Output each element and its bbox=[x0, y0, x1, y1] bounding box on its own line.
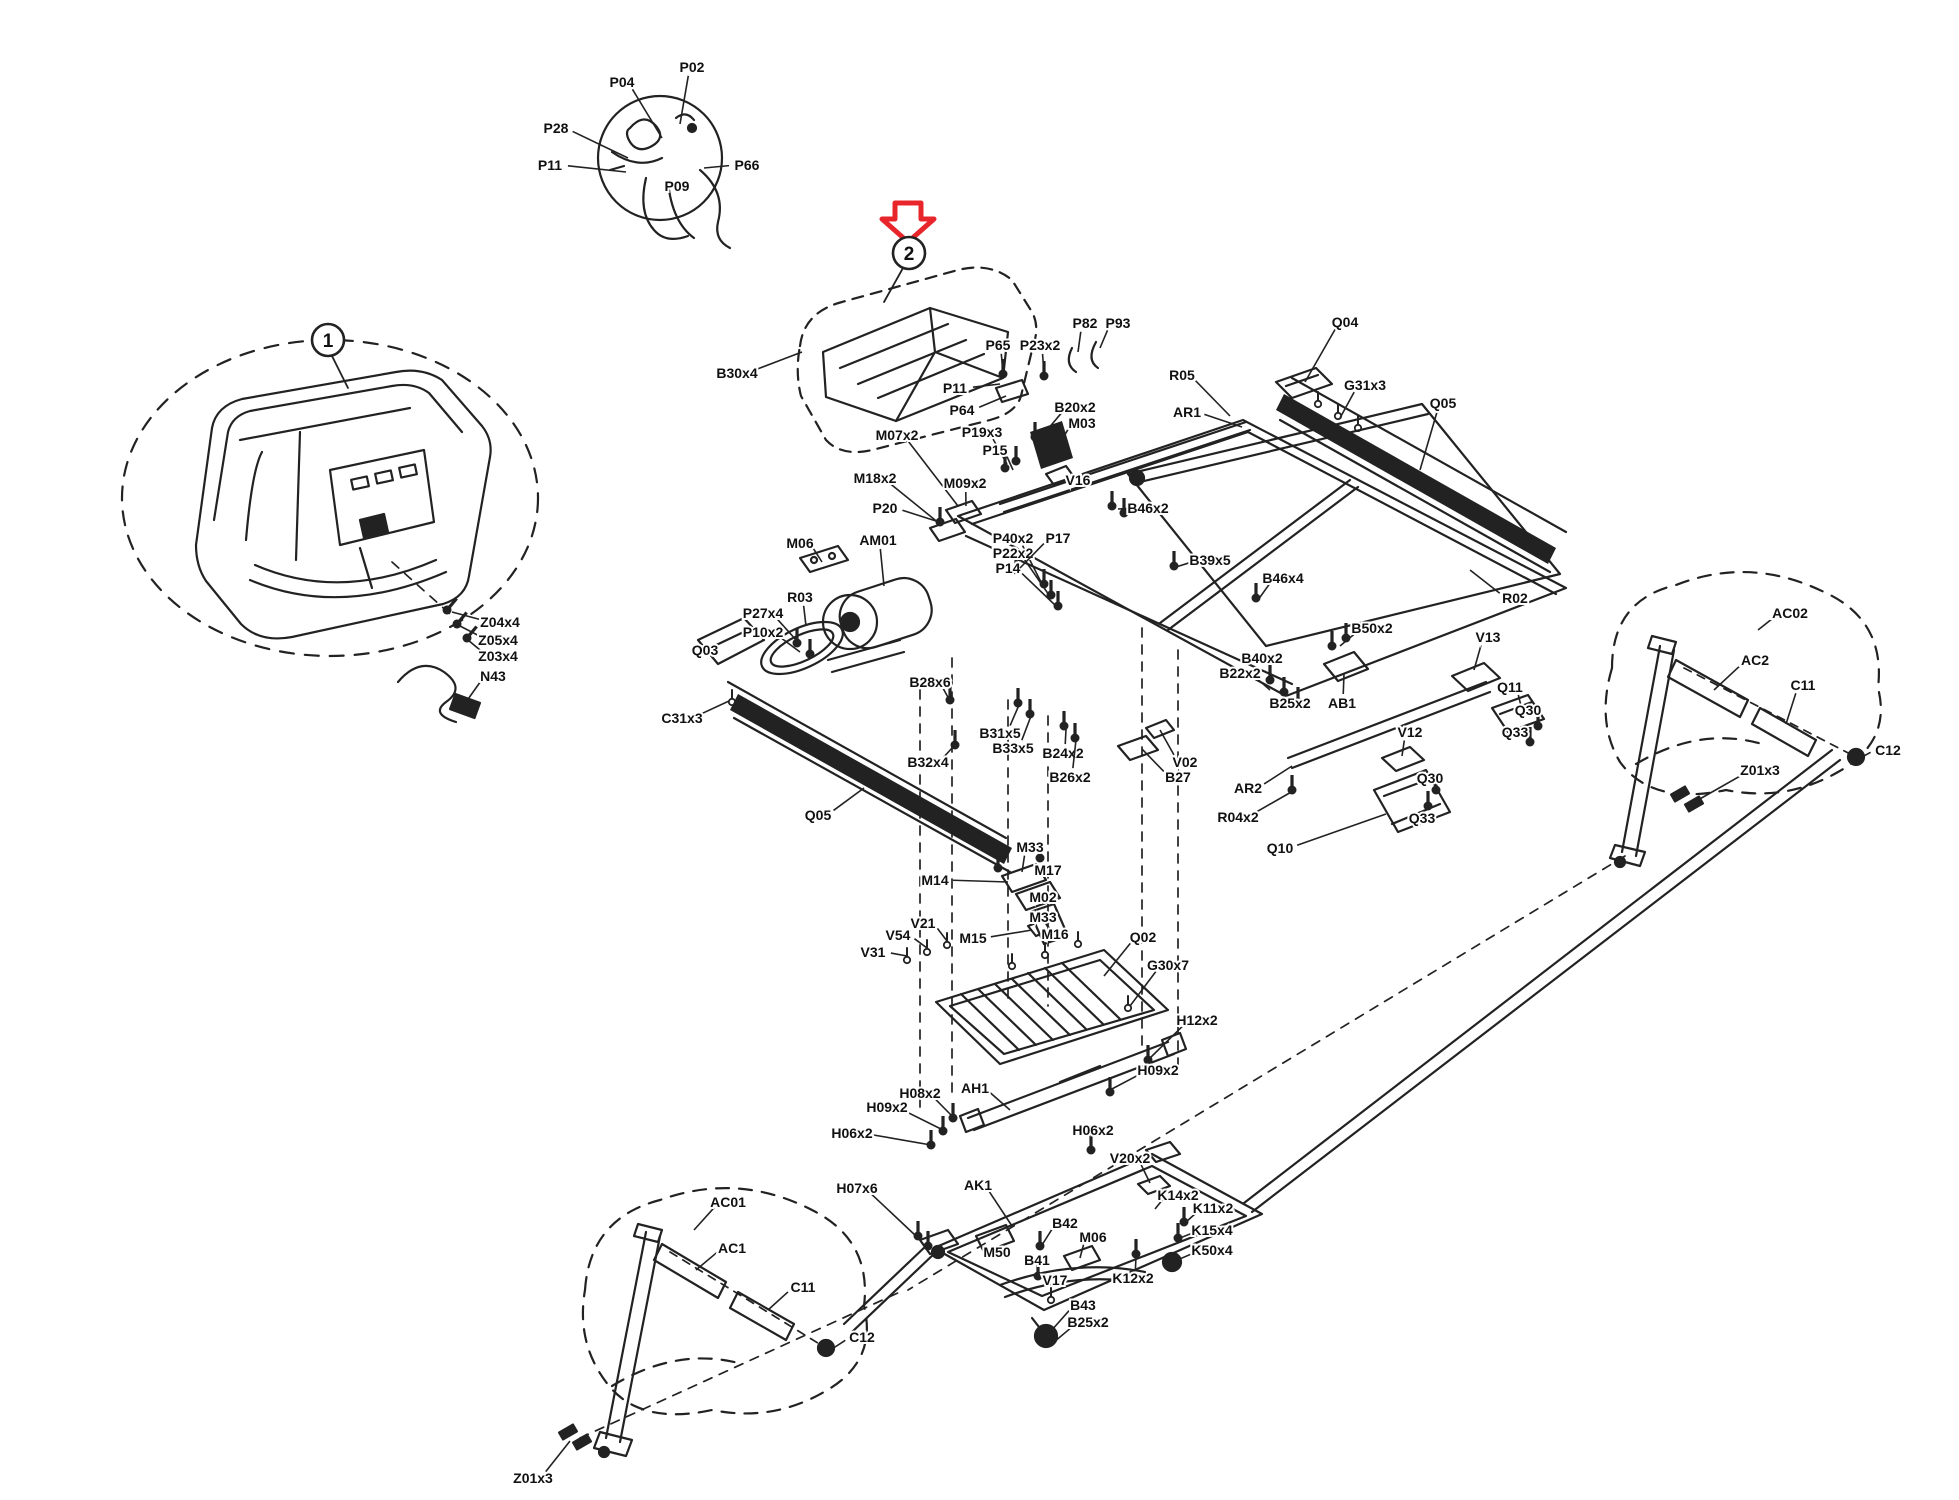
part-label-p64: P64 bbox=[950, 402, 975, 418]
leader-line-m03 bbox=[1062, 429, 1068, 440]
part-label-c12: C12 bbox=[849, 1329, 875, 1345]
part-label-c11: C11 bbox=[791, 1279, 816, 1295]
leader-line-v21 bbox=[937, 928, 947, 941]
leader-line-q10 bbox=[1297, 814, 1386, 845]
part-label-ac1: AC1 bbox=[718, 1240, 746, 1256]
leader-line-b30x4 bbox=[754, 352, 802, 370]
leader-line-b20x2 bbox=[1042, 413, 1061, 436]
part-label-p66: P66 bbox=[735, 157, 760, 173]
leader-line-ac1 bbox=[696, 1253, 717, 1270]
leader-line-p11 bbox=[568, 166, 626, 172]
part-label-p14: P14 bbox=[996, 560, 1021, 576]
leader-line-p82 bbox=[1078, 332, 1081, 352]
part-label-z05x4: Z05x4 bbox=[478, 632, 518, 648]
leader-line-p20 bbox=[902, 510, 936, 521]
part-label-b41: B41 bbox=[1024, 1252, 1050, 1268]
leader-line-h12x2 bbox=[1148, 1026, 1183, 1060]
leader-line-p65 bbox=[1001, 354, 1003, 372]
callout-2: 2 bbox=[893, 237, 925, 269]
part-label-k50x4: K50x4 bbox=[1191, 1242, 1232, 1258]
part-label-m15: M15 bbox=[959, 930, 986, 946]
callout-number: 2 bbox=[904, 244, 915, 265]
part-label-b33x5: B33x5 bbox=[992, 740, 1033, 756]
leader-line-q04 bbox=[1305, 329, 1335, 382]
leader-line-c31x3 bbox=[699, 701, 729, 715]
part-label-p82: P82 bbox=[1073, 315, 1098, 331]
part-label-c12: C12 bbox=[1875, 742, 1901, 758]
leader-line-v12 bbox=[1402, 741, 1404, 756]
leader-line-ar2 bbox=[1264, 766, 1292, 784]
part-label-b24x2: B24x2 bbox=[1042, 745, 1083, 761]
part-label-p11: P11 bbox=[538, 157, 562, 173]
leader-line-ak1 bbox=[989, 1192, 1012, 1226]
part-label-m14: M14 bbox=[921, 872, 948, 888]
part-label-p22x2: P22x2 bbox=[993, 545, 1034, 561]
leader-line-p11 bbox=[973, 384, 1000, 387]
leader-line-b43 bbox=[1051, 1311, 1069, 1331]
leader-line-h07x6 bbox=[871, 1194, 916, 1236]
part-label-p09: P09 bbox=[665, 178, 690, 194]
part-label-m09x2: M09x2 bbox=[944, 475, 987, 491]
part-label-b40x2: B40x2 bbox=[1241, 650, 1282, 666]
part-label-z03x4: Z03x4 bbox=[478, 648, 518, 664]
part-label-b46x2: B46x2 bbox=[1127, 500, 1168, 516]
part-label-h06x2: H06x2 bbox=[1072, 1122, 1113, 1138]
part-label-k12x2: K12x2 bbox=[1112, 1270, 1153, 1286]
part-label-b27: B27 bbox=[1165, 769, 1191, 785]
part-label-r05: R05 bbox=[1169, 367, 1195, 383]
part-label-q02: Q02 bbox=[1130, 929, 1157, 945]
part-label-p17: P17 bbox=[1046, 530, 1071, 546]
leader-line-p22x2 bbox=[1025, 560, 1049, 595]
part-label-v54: V54 bbox=[886, 927, 911, 943]
part-label-q04: Q04 bbox=[1332, 314, 1359, 330]
leader-line-c12 bbox=[832, 1340, 845, 1349]
leader-line-p28 bbox=[573, 131, 628, 158]
part-label-q10: Q10 bbox=[1267, 840, 1294, 856]
part-label-n43: N43 bbox=[480, 668, 506, 684]
leader-line-p23x2 bbox=[1043, 354, 1044, 373]
part-label-q11: Q11 bbox=[1497, 679, 1523, 695]
part-label-b31x5: B31x5 bbox=[979, 725, 1020, 741]
leader-line-k12x2 bbox=[1135, 1256, 1136, 1269]
part-label-m18x2: M18x2 bbox=[854, 470, 897, 486]
part-label-b50x2: B50x2 bbox=[1351, 620, 1392, 636]
part-label-b42: B42 bbox=[1052, 1215, 1078, 1231]
part-label-ak1: AK1 bbox=[964, 1177, 992, 1193]
part-label-z01x3: Z01x3 bbox=[1740, 762, 1780, 778]
part-label-p15: P15 bbox=[983, 442, 1008, 458]
exploded-parts-diagram: P04P02P28P11P66P09B30x4P65P23x2P82P93P11… bbox=[0, 0, 1959, 1500]
leader-line-q05 bbox=[1420, 412, 1437, 470]
part-label-h06x2: H06x2 bbox=[831, 1125, 872, 1141]
part-label-p28: P28 bbox=[544, 120, 569, 136]
part-label-m16: M16 bbox=[1041, 926, 1068, 942]
leader-line-am01 bbox=[880, 549, 884, 586]
part-label-v13: V13 bbox=[1476, 629, 1501, 645]
leader-line-ac2 bbox=[1714, 665, 1740, 690]
part-label-b28x6: B28x6 bbox=[909, 674, 950, 690]
leader-line-ah1 bbox=[990, 1093, 1010, 1110]
leader-line-p93 bbox=[1100, 330, 1107, 348]
part-label-v12: V12 bbox=[1398, 724, 1423, 740]
leader-line-g30x7 bbox=[1130, 972, 1156, 1006]
part-label-q30: Q30 bbox=[1515, 702, 1542, 718]
leader-line-b42 bbox=[1042, 1229, 1052, 1245]
part-label-p40x2: P40x2 bbox=[993, 530, 1034, 546]
leader-line-ab1 bbox=[1343, 674, 1344, 694]
leader-line-v54 bbox=[914, 939, 927, 948]
part-label-h07x6: H07x6 bbox=[836, 1180, 877, 1196]
part-label-m17: M17 bbox=[1034, 862, 1061, 878]
leader-line-v31 bbox=[891, 953, 907, 956]
part-label-p02: P02 bbox=[680, 59, 705, 75]
leader-line-b40x2 bbox=[1269, 666, 1272, 680]
leader-line-v20x2 bbox=[1141, 1165, 1150, 1183]
leader-line-p66 bbox=[704, 166, 729, 168]
part-label-k11x2: K11x2 bbox=[1193, 1200, 1234, 1216]
part-label-b46x4: B46x4 bbox=[1262, 570, 1303, 586]
leader-line-z04x4 bbox=[452, 612, 482, 620]
part-label-q33: Q33 bbox=[1409, 810, 1436, 826]
part-label-b32x4: B32x4 bbox=[907, 754, 948, 770]
leader-line-h09x2 bbox=[904, 1110, 943, 1130]
part-label-ar2: AR2 bbox=[1234, 780, 1262, 796]
part-label-h09x2: H09x2 bbox=[1137, 1062, 1178, 1078]
leader-line-b24x2 bbox=[1065, 729, 1066, 744]
part-label-p93: P93 bbox=[1106, 315, 1131, 331]
callout-number: 1 bbox=[323, 331, 334, 352]
part-label-z01x3: Z01x3 bbox=[513, 1470, 553, 1486]
leader-line-p02 bbox=[680, 76, 688, 124]
leader-line-g31x3 bbox=[1340, 392, 1354, 418]
part-label-q05: Q05 bbox=[1430, 395, 1457, 411]
part-label-p20: P20 bbox=[873, 500, 898, 516]
part-label-ah1: AH1 bbox=[961, 1080, 989, 1096]
leader-line-b27 bbox=[1142, 749, 1164, 771]
part-label-v31: V31 bbox=[861, 944, 886, 960]
part-label-m06: M06 bbox=[786, 535, 813, 551]
part-label-q33: Q33 bbox=[1502, 724, 1529, 740]
leader-line-m07x2 bbox=[909, 442, 958, 506]
leader-line-c12 bbox=[1862, 752, 1871, 757]
leader-line-p64 bbox=[979, 396, 1006, 407]
part-label-r04x2: R04x2 bbox=[1217, 809, 1258, 825]
part-label-m07x2: M07x2 bbox=[876, 427, 919, 443]
diagram-labels: P04P02P28P11P66P09B30x4P65P23x2P82P93P11… bbox=[0, 0, 1959, 1500]
part-label-v17: V17 bbox=[1043, 1272, 1068, 1288]
leader-line-p15 bbox=[1007, 457, 1013, 470]
leader-line-c11 bbox=[768, 1292, 788, 1310]
part-label-m02: M02 bbox=[1029, 889, 1056, 905]
leader-line-r02 bbox=[1470, 570, 1500, 593]
part-label-ac02: AC02 bbox=[1772, 605, 1808, 621]
leader-line-b28x6 bbox=[943, 688, 950, 701]
leader-line-r03 bbox=[804, 606, 806, 626]
part-label-v20x2: V20x2 bbox=[1110, 1150, 1151, 1166]
callout-1: 1 bbox=[312, 324, 344, 356]
part-label-p10x2: P10x2 bbox=[743, 624, 784, 640]
leader-line-c11 bbox=[1786, 693, 1796, 724]
leader-line-v02 bbox=[1160, 730, 1174, 755]
part-label-b43: B43 bbox=[1070, 1297, 1096, 1313]
leader-line-m15 bbox=[991, 930, 1032, 937]
part-label-m33: M33 bbox=[1016, 839, 1043, 855]
part-label-q30: Q30 bbox=[1417, 770, 1444, 786]
leader-line-b46x4 bbox=[1258, 584, 1269, 600]
leader-line-z01x3 bbox=[546, 1441, 570, 1472]
part-label-g30x7: G30x7 bbox=[1147, 957, 1189, 973]
leader-line-h06x2 bbox=[870, 1134, 931, 1145]
part-label-p11: P11 bbox=[943, 380, 967, 396]
part-label-k15x4: K15x4 bbox=[1191, 1222, 1232, 1238]
part-label-z04x4: Z04x4 bbox=[480, 614, 520, 630]
leader-line-z01x3 bbox=[1698, 774, 1744, 800]
part-label-b25x2: B25x2 bbox=[1067, 1314, 1108, 1330]
part-label-m33: M33 bbox=[1029, 909, 1056, 925]
part-label-b20x2: B20x2 bbox=[1054, 399, 1095, 415]
part-label-b30x4: B30x4 bbox=[716, 365, 757, 381]
part-label-b22x2: B22x2 bbox=[1219, 665, 1260, 681]
leader-line-m06 bbox=[1080, 1245, 1084, 1258]
part-label-p27x4: P27x4 bbox=[743, 605, 784, 621]
leader-line-m14 bbox=[953, 880, 1008, 882]
part-label-b25x2: B25x2 bbox=[1269, 695, 1310, 711]
part-label-m03: M03 bbox=[1068, 415, 1095, 431]
part-label-r03: R03 bbox=[787, 589, 813, 605]
leader-line-ar1 bbox=[1204, 414, 1242, 427]
leader-line-p04 bbox=[632, 89, 662, 138]
part-label-p65: P65 bbox=[986, 337, 1011, 353]
part-label-h09x2: H09x2 bbox=[866, 1099, 907, 1115]
part-label-r02: R02 bbox=[1502, 590, 1528, 606]
part-label-m50: M50 bbox=[983, 1244, 1010, 1260]
leader-line-h08x2 bbox=[935, 1098, 953, 1117]
part-label-p04: P04 bbox=[610, 74, 635, 90]
part-label-g31x3: G31x3 bbox=[1344, 377, 1386, 393]
leader-line-n43 bbox=[466, 682, 480, 702]
part-label-p23x2: P23x2 bbox=[1020, 337, 1061, 353]
part-label-ac2: AC2 bbox=[1741, 652, 1769, 668]
part-label-v16: V16 bbox=[1066, 472, 1091, 488]
part-label-b39x5: B39x5 bbox=[1189, 552, 1230, 568]
part-label-b26x2: B26x2 bbox=[1049, 769, 1090, 785]
part-label-v21: V21 bbox=[911, 915, 936, 931]
part-label-q05: Q05 bbox=[805, 807, 832, 823]
leader-line-q05 bbox=[834, 788, 864, 810]
part-label-p19x3: P19x3 bbox=[962, 424, 1003, 440]
leader-line-b31x5 bbox=[1010, 705, 1019, 726]
part-label-h12x2: H12x2 bbox=[1176, 1012, 1217, 1028]
part-label-c31x3: C31x3 bbox=[661, 710, 702, 726]
leader-line-m33 bbox=[1022, 856, 1025, 872]
leader-line-v13 bbox=[1474, 645, 1481, 670]
leader-line-q02 bbox=[1104, 943, 1130, 976]
part-label-m06: M06 bbox=[1079, 1229, 1106, 1245]
part-label-c11: C11 bbox=[1791, 677, 1816, 693]
leader-line-m06 bbox=[814, 549, 822, 562]
part-label-ac01: AC01 bbox=[710, 1194, 746, 1210]
part-label-am01: AM01 bbox=[859, 532, 897, 548]
part-label-ab1: AB1 bbox=[1328, 695, 1356, 711]
part-label-ar1: AR1 bbox=[1173, 404, 1201, 420]
leader-line-ac01 bbox=[694, 1208, 714, 1230]
leader-line-b33x5 bbox=[1022, 716, 1031, 740]
part-label-v02: V02 bbox=[1173, 754, 1198, 770]
part-label-q03: Q03 bbox=[692, 642, 719, 658]
